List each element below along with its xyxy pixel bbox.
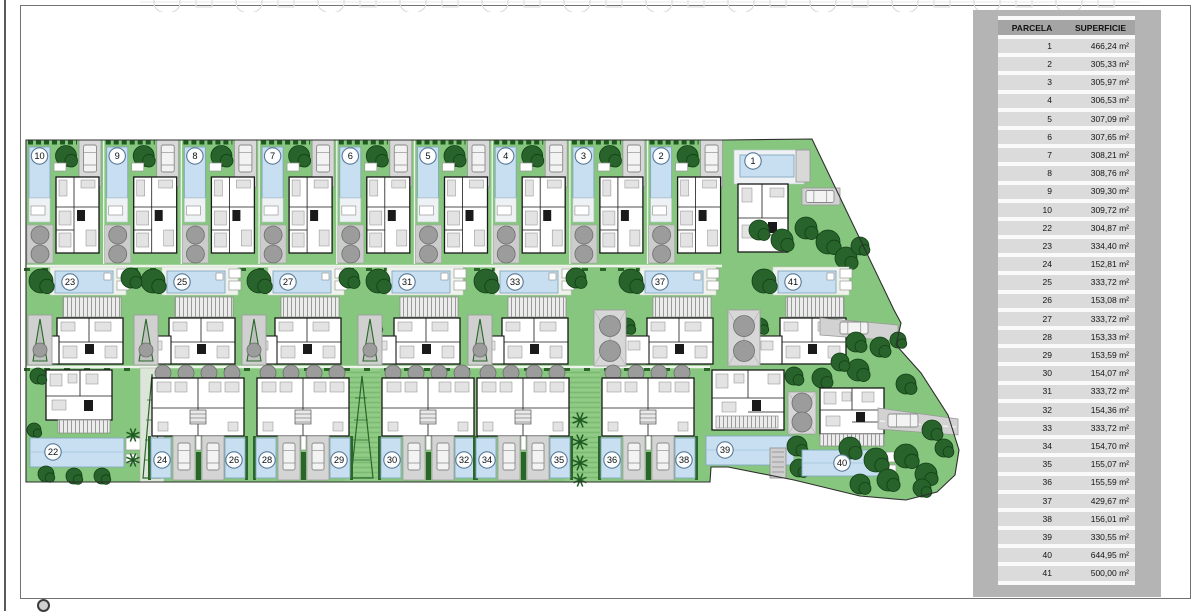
villa-plot: 5 bbox=[415, 140, 490, 264]
parcel-row: 28153,33 m² bbox=[998, 330, 1135, 344]
parcel-row: 6307,65 m² bbox=[998, 130, 1135, 144]
superficie-cell: 154,07 m² bbox=[1066, 366, 1135, 380]
superficie-cell: 306,53 m² bbox=[1066, 94, 1135, 108]
plot-number-label: 23 bbox=[65, 277, 75, 287]
villa-plot: 8 bbox=[181, 140, 256, 264]
parcel-row: 10309,72 m² bbox=[998, 203, 1135, 217]
plot-number: 35 bbox=[551, 452, 567, 468]
parcel-table: PARCELA SUPERFICIE 1466,24 m²2305,33 m²3… bbox=[998, 16, 1135, 585]
plot-number-label: 36 bbox=[607, 455, 617, 465]
plot-number-label: 41 bbox=[788, 277, 798, 287]
parcela-cell: 31 bbox=[998, 385, 1066, 399]
plot-number-label: 3 bbox=[581, 151, 586, 161]
parcela-cell: 35 bbox=[998, 457, 1066, 471]
sheet-left-edge bbox=[4, 0, 6, 611]
superficie-cell: 153,08 m² bbox=[1066, 294, 1135, 308]
parcel-table-header-row: PARCELA SUPERFICIE bbox=[998, 20, 1135, 35]
superficie-cell: 466,24 m² bbox=[1066, 39, 1135, 53]
parcela-cell: 4 bbox=[998, 94, 1066, 108]
plot-number-label: 26 bbox=[229, 455, 239, 465]
parcela-cell: 26 bbox=[998, 294, 1066, 308]
parcel-row: 29153,59 m² bbox=[998, 348, 1135, 362]
superficie-cell: 304,87 m² bbox=[1066, 221, 1135, 235]
parcela-cell: 39 bbox=[998, 530, 1066, 544]
parcel-row: 39330,55 m² bbox=[998, 530, 1135, 544]
parcela-cell: 32 bbox=[998, 403, 1066, 417]
parking-pad bbox=[594, 310, 626, 366]
superficie-cell: 333,72 m² bbox=[1066, 385, 1135, 399]
superficie-cell: 155,07 m² bbox=[1066, 457, 1135, 471]
car-icon bbox=[705, 145, 718, 172]
plot-number-label: 33 bbox=[510, 277, 520, 287]
superficie-cell: 305,97 m² bbox=[1066, 75, 1135, 89]
plot-number-label: 35 bbox=[554, 455, 564, 465]
superficie-cell: 500,00 m² bbox=[1066, 566, 1135, 580]
plot-number-label: 40 bbox=[837, 458, 847, 468]
plot-number-label: 1 bbox=[750, 156, 755, 166]
driveway-strip bbox=[358, 315, 382, 365]
plot-number: 22 bbox=[45, 444, 61, 460]
superficie-cell: 333,72 m² bbox=[1066, 312, 1135, 326]
villa-plot: 9 bbox=[104, 140, 179, 264]
parcela-cell: 23 bbox=[998, 239, 1066, 253]
plot-number: 26 bbox=[226, 452, 242, 468]
plot-number: 28 bbox=[259, 452, 275, 468]
parcel-row: 38156,01 m² bbox=[998, 512, 1135, 526]
plot-number: 2 bbox=[653, 148, 669, 164]
plot-number-label: 10 bbox=[34, 151, 44, 161]
plot-number-label: 4 bbox=[503, 151, 508, 161]
car-icon bbox=[178, 443, 190, 470]
car-icon bbox=[312, 443, 324, 470]
plot-number-label: 22 bbox=[48, 447, 58, 457]
superficie-cell: 155,59 m² bbox=[1066, 476, 1135, 490]
tree-icon bbox=[27, 423, 42, 437]
parcel-row: 27333,72 m² bbox=[998, 312, 1135, 326]
plot-number: 4 bbox=[498, 148, 514, 164]
parcela-cell: 8 bbox=[998, 166, 1066, 180]
parcela-cell: 10 bbox=[998, 203, 1066, 217]
parcel-row: 30154,07 m² bbox=[998, 366, 1135, 380]
plot-number: 30 bbox=[384, 452, 400, 468]
parcela-cell: 33 bbox=[998, 421, 1066, 435]
tree-icon bbox=[38, 466, 55, 482]
superficie-cell: 644,95 m² bbox=[1066, 548, 1135, 562]
plot-number-label: 7 bbox=[270, 151, 275, 161]
plot-number-label: 29 bbox=[334, 455, 344, 465]
car-icon bbox=[437, 443, 449, 470]
parcel-row: 8308,76 m² bbox=[998, 166, 1135, 180]
plot-number: 5 bbox=[420, 148, 436, 164]
car-icon bbox=[317, 145, 330, 172]
superficie-cell: 156,01 m² bbox=[1066, 512, 1135, 526]
car-icon bbox=[472, 145, 485, 172]
superficie-cell: 334,40 m² bbox=[1066, 239, 1135, 253]
parcel-row: 35155,07 m² bbox=[998, 457, 1135, 471]
plot-number: 36 bbox=[604, 452, 620, 468]
plot-number: 7 bbox=[264, 148, 280, 164]
villa-plot: 6 bbox=[337, 140, 412, 264]
townhouse-block: 3032 bbox=[378, 365, 478, 480]
parcel-row: 34154,70 m² bbox=[998, 439, 1135, 453]
parcela-cell: 9 bbox=[998, 185, 1066, 199]
car-icon bbox=[239, 145, 252, 172]
parcel-table-panel: PARCELA SUPERFICIE 1466,24 m²2305,33 m²3… bbox=[973, 10, 1161, 597]
car-icon bbox=[394, 145, 407, 172]
parcela-cell: 37 bbox=[998, 494, 1066, 508]
parcel-row: 23334,40 m² bbox=[998, 239, 1135, 253]
tree-icon bbox=[30, 368, 47, 384]
plot-number-label: 28 bbox=[262, 455, 272, 465]
parking-pad bbox=[728, 310, 760, 366]
townhouse-block: 2829 bbox=[253, 365, 353, 480]
plot-number-label: 6 bbox=[348, 151, 353, 161]
plot-number-label: 38 bbox=[679, 455, 689, 465]
plot-number-label: 34 bbox=[482, 455, 492, 465]
plot-number-label: 31 bbox=[402, 277, 412, 287]
plot-number: 3 bbox=[575, 148, 591, 164]
plot-number: 27 bbox=[280, 274, 296, 290]
superficie-cell: 333,72 m² bbox=[1066, 421, 1135, 435]
parcela-cell: 28 bbox=[998, 330, 1066, 344]
parcel-row: 40644,95 m² bbox=[998, 548, 1135, 562]
plot-number: 23 bbox=[62, 274, 78, 290]
driveway-strip bbox=[468, 315, 492, 365]
plot-number-label: 9 bbox=[115, 151, 120, 161]
townhouse-block: 3435 bbox=[473, 365, 573, 480]
villa-plot: 7 bbox=[259, 140, 334, 264]
parcela-cell: 25 bbox=[998, 275, 1066, 289]
parcela-cell: 29 bbox=[998, 348, 1066, 362]
superficie-cell: 153,33 m² bbox=[1066, 330, 1135, 344]
driveway-strip bbox=[28, 315, 52, 365]
plot-number-label: 24 bbox=[157, 455, 167, 465]
parcela-cell: 34 bbox=[998, 439, 1066, 453]
plot-number-label: 5 bbox=[425, 151, 430, 161]
parcela-cell: 6 bbox=[998, 130, 1066, 144]
plot-number-label: 32 bbox=[459, 455, 469, 465]
parcel-row: 36155,59 m² bbox=[998, 476, 1135, 490]
car-icon bbox=[532, 443, 544, 470]
villa-plot: 4 bbox=[492, 140, 567, 264]
parcela-cell: 41 bbox=[998, 566, 1066, 580]
villa-plot: 10 bbox=[26, 140, 101, 264]
site-plan-drawing: 1098765432123252731333741222426282930323… bbox=[22, 130, 972, 512]
parcela-cell: 3 bbox=[998, 75, 1066, 89]
parcela-cell: 36 bbox=[998, 476, 1066, 490]
car-icon bbox=[207, 443, 219, 470]
car-icon bbox=[628, 443, 640, 470]
parcel-row: 25333,72 m² bbox=[998, 275, 1135, 289]
plot-number: 29 bbox=[331, 452, 347, 468]
parcel-row: 9309,30 m² bbox=[998, 185, 1135, 199]
villa-plot-39: 39 bbox=[706, 367, 816, 478]
car-icon bbox=[503, 443, 515, 470]
parcela-cell: 27 bbox=[998, 312, 1066, 326]
superficie-cell: 330,55 m² bbox=[1066, 530, 1135, 544]
parcela-cell: 2 bbox=[998, 57, 1066, 71]
villa-plot: 3 bbox=[570, 140, 645, 264]
plot-number-label: 25 bbox=[177, 277, 187, 287]
townhouse-block: 2426 bbox=[148, 365, 248, 480]
car-icon bbox=[84, 145, 97, 172]
parcela-cell: 30 bbox=[998, 366, 1066, 380]
parcela-cell: 24 bbox=[998, 257, 1066, 271]
parcela-cell: 40 bbox=[998, 548, 1066, 562]
villa-plot: 2 bbox=[648, 140, 723, 264]
superficie-cell: 305,33 m² bbox=[1066, 57, 1135, 71]
col-header-superficie: SUPERFICIE bbox=[1066, 20, 1135, 35]
car-icon bbox=[161, 145, 174, 172]
parcel-row: 41500,00 m² bbox=[998, 566, 1135, 580]
plot-number: 8 bbox=[187, 148, 203, 164]
superficie-cell: 154,70 m² bbox=[1066, 439, 1135, 453]
plot-number: 41 bbox=[785, 274, 801, 290]
driveway-strip bbox=[242, 315, 266, 365]
plot-number-label: 30 bbox=[387, 455, 397, 465]
plot-number-label: 2 bbox=[659, 151, 664, 161]
parcel-row: 1466,24 m² bbox=[998, 39, 1135, 53]
superficie-cell: 154,36 m² bbox=[1066, 403, 1135, 417]
parcela-cell: 5 bbox=[998, 112, 1066, 126]
superficie-cell: 309,30 m² bbox=[1066, 185, 1135, 199]
parcel-row: 3305,97 m² bbox=[998, 75, 1135, 89]
parcel-row: 37429,67 m² bbox=[998, 494, 1135, 508]
parcel-row: 5307,09 m² bbox=[998, 112, 1135, 126]
plot-number: 34 bbox=[479, 452, 495, 468]
car-icon bbox=[627, 145, 640, 172]
parcela-cell: 7 bbox=[998, 148, 1066, 162]
col-header-parcela: PARCELA bbox=[998, 20, 1066, 35]
car-icon bbox=[408, 443, 420, 470]
plot-number: 33 bbox=[507, 274, 523, 290]
plot-number: 25 bbox=[174, 274, 190, 290]
driveway-strip bbox=[134, 315, 158, 365]
plot-number: 9 bbox=[109, 148, 125, 164]
parcel-row: 2305,33 m² bbox=[998, 57, 1135, 71]
car-icon bbox=[806, 191, 834, 203]
plot-number: 32 bbox=[456, 452, 472, 468]
plot-number: 37 bbox=[652, 274, 668, 290]
plot-number-label: 8 bbox=[192, 151, 197, 161]
plot-number-label: 37 bbox=[655, 277, 665, 287]
car-icon bbox=[888, 414, 918, 427]
parcel-row: 26153,08 m² bbox=[998, 294, 1135, 308]
parcel-row: 7308,21 m² bbox=[998, 148, 1135, 162]
plot-number: 1 bbox=[745, 153, 761, 169]
parcela-cell: 1 bbox=[998, 39, 1066, 53]
plot-number: 24 bbox=[154, 452, 170, 468]
plot-number-label: 27 bbox=[283, 277, 293, 287]
plot-number: 40 bbox=[834, 455, 850, 471]
superficie-cell: 308,76 m² bbox=[1066, 166, 1135, 180]
plot-number: 38 bbox=[676, 452, 692, 468]
plot-number: 6 bbox=[342, 148, 358, 164]
parcel-table-body: 1466,24 m²2305,33 m²3305,97 m²4306,53 m²… bbox=[998, 39, 1135, 581]
parcel-row: 31333,72 m² bbox=[998, 385, 1135, 399]
car-icon bbox=[550, 145, 563, 172]
plot-number: 39 bbox=[717, 442, 733, 458]
car-icon bbox=[283, 443, 295, 470]
plan-sheet: 1098765432123252731333741222426282930323… bbox=[0, 0, 1200, 611]
parcel-row: 4306,53 m² bbox=[998, 94, 1135, 108]
superficie-cell: 308,21 m² bbox=[1066, 148, 1135, 162]
parcel-row: 24152,81 m² bbox=[998, 257, 1135, 271]
superficie-cell: 152,81 m² bbox=[1066, 257, 1135, 271]
parcel-row: 22304,87 m² bbox=[998, 221, 1135, 235]
car-icon bbox=[657, 443, 669, 470]
townhouse-block: 3638 bbox=[598, 365, 698, 480]
parcel-row: 32154,36 m² bbox=[998, 403, 1135, 417]
superficie-cell: 153,59 m² bbox=[1066, 348, 1135, 362]
superficie-cell: 307,09 m² bbox=[1066, 112, 1135, 126]
superficie-cell: 333,72 m² bbox=[1066, 275, 1135, 289]
plot-number-label: 39 bbox=[720, 445, 730, 455]
parcela-cell: 22 bbox=[998, 221, 1066, 235]
plot-number: 31 bbox=[399, 274, 415, 290]
plot-number: 10 bbox=[31, 148, 47, 164]
parcela-cell: 38 bbox=[998, 512, 1066, 526]
parcel-row: 33333,72 m² bbox=[998, 421, 1135, 435]
superficie-cell: 429,67 m² bbox=[1066, 494, 1135, 508]
bottom-left-symbol bbox=[37, 599, 50, 612]
superficie-cell: 307,65 m² bbox=[1066, 130, 1135, 144]
superficie-cell: 309,72 m² bbox=[1066, 203, 1135, 217]
